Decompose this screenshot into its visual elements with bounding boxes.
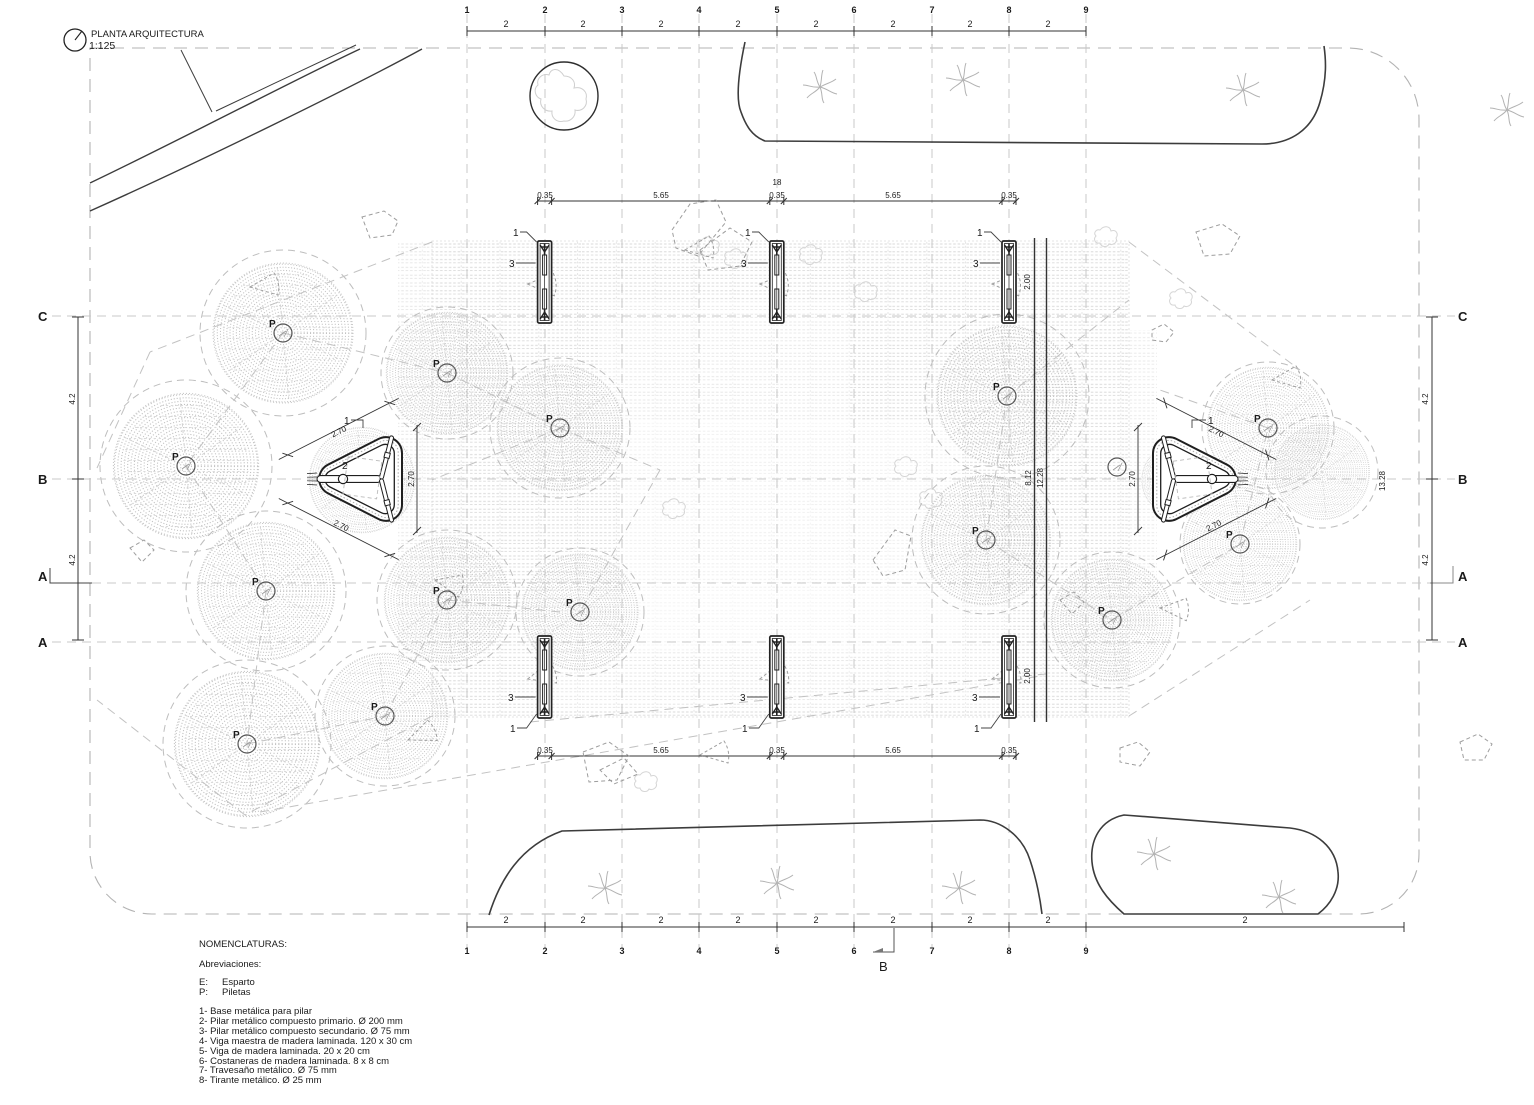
svg-text:2: 2 [813, 19, 818, 29]
svg-text:2.70: 2.70 [407, 471, 416, 487]
svg-text:NOMENCLATURAS:: NOMENCLATURAS: [199, 939, 287, 950]
svg-text:3: 3 [508, 693, 514, 704]
svg-text:8: 8 [1006, 946, 1011, 956]
svg-text:B: B [38, 472, 47, 487]
svg-text:1: 1 [742, 724, 748, 735]
svg-text:4.2: 4.2 [1421, 554, 1430, 566]
svg-text:2: 2 [890, 19, 895, 29]
svg-text:0.35: 0.35 [1001, 191, 1017, 200]
svg-text:3: 3 [741, 259, 747, 270]
svg-text:5.65: 5.65 [885, 191, 901, 200]
svg-text:2: 2 [542, 5, 547, 15]
svg-text:P: P [252, 577, 259, 588]
svg-text:2: 2 [542, 946, 547, 956]
svg-text:6: 6 [851, 946, 856, 956]
svg-text:A: A [38, 569, 48, 584]
svg-text:1:125: 1:125 [89, 40, 115, 52]
svg-text:3: 3 [619, 5, 624, 15]
svg-text:8.12: 8.12 [1024, 470, 1033, 486]
svg-text:3: 3 [972, 693, 978, 704]
svg-text:1: 1 [510, 724, 516, 735]
svg-text:9: 9 [1083, 5, 1088, 15]
svg-text:4: 4 [696, 5, 701, 15]
svg-text:2: 2 [890, 915, 895, 925]
svg-text:5.65: 5.65 [885, 746, 901, 755]
svg-text:P: P [972, 526, 979, 537]
svg-text:2: 2 [580, 915, 585, 925]
svg-text:1: 1 [344, 416, 350, 427]
svg-text:1: 1 [974, 724, 980, 735]
svg-text:0.35: 0.35 [537, 746, 553, 755]
svg-text:1: 1 [977, 228, 983, 239]
svg-text:0.35: 0.35 [769, 746, 785, 755]
svg-text:4: 4 [696, 946, 701, 956]
svg-text:Piletas: Piletas [222, 987, 251, 998]
svg-text:13.28: 13.28 [1378, 470, 1387, 491]
svg-text:3: 3 [509, 259, 515, 270]
svg-text:A: A [1458, 569, 1468, 584]
svg-text:2: 2 [967, 915, 972, 925]
svg-text:8: 8 [1006, 5, 1011, 15]
svg-text:2.00: 2.00 [1023, 274, 1032, 290]
svg-text:P: P [433, 586, 440, 597]
svg-text:C: C [38, 309, 48, 324]
svg-text:2: 2 [813, 915, 818, 925]
svg-text:2: 2 [1206, 461, 1212, 472]
svg-text:3: 3 [973, 259, 979, 270]
svg-text:P: P [433, 359, 440, 370]
svg-text:A: A [1458, 635, 1468, 650]
svg-text:0.35: 0.35 [537, 191, 553, 200]
svg-text:C: C [1458, 309, 1468, 324]
svg-text:7: 7 [929, 5, 934, 15]
svg-text:2: 2 [1045, 19, 1050, 29]
svg-text:5: 5 [774, 5, 779, 15]
svg-text:P: P [269, 319, 276, 330]
svg-text:P: P [1098, 606, 1105, 617]
svg-text:5: 5 [774, 946, 779, 956]
svg-text:9: 9 [1083, 946, 1088, 956]
svg-text:2: 2 [503, 19, 508, 29]
svg-text:2.70: 2.70 [1128, 471, 1137, 487]
svg-text:P: P [1254, 414, 1261, 425]
svg-text:5.65: 5.65 [653, 746, 669, 755]
svg-text:P: P [546, 414, 553, 425]
svg-text:3: 3 [740, 693, 746, 704]
svg-text:P: P [993, 382, 1000, 393]
svg-text:2: 2 [1045, 915, 1050, 925]
svg-text:4.2: 4.2 [68, 554, 77, 566]
svg-text:7: 7 [929, 946, 934, 956]
svg-text:B: B [1458, 472, 1467, 487]
svg-text:P:: P: [199, 987, 208, 998]
svg-text:A: A [38, 635, 48, 650]
svg-text:1: 1 [745, 228, 751, 239]
svg-text:2.00: 2.00 [1023, 668, 1032, 684]
svg-text:Abreviaciones:: Abreviaciones: [199, 959, 261, 970]
svg-text:2: 2 [503, 915, 508, 925]
svg-text:12.28: 12.28 [1036, 467, 1045, 488]
svg-text:2: 2 [735, 19, 740, 29]
svg-text:4.2: 4.2 [68, 393, 77, 405]
svg-text:5.65: 5.65 [653, 191, 669, 200]
svg-text:1: 1 [513, 228, 519, 239]
svg-text:PLANTA ARQUITECTURA: PLANTA ARQUITECTURA [91, 29, 204, 40]
svg-text:P: P [371, 702, 378, 713]
svg-text:1: 1 [464, 946, 469, 956]
svg-text:2: 2 [735, 915, 740, 925]
svg-text:2: 2 [580, 19, 585, 29]
svg-text:P: P [566, 598, 573, 609]
svg-text:1: 1 [1208, 416, 1214, 427]
svg-text:1: 1 [464, 5, 469, 15]
svg-text:2: 2 [1242, 915, 1247, 925]
svg-text:B: B [879, 959, 888, 974]
svg-text:18: 18 [773, 178, 782, 187]
svg-text:P: P [1226, 530, 1233, 541]
svg-text:8- Tirante metálico. Ø 25 mm: 8- Tirante metálico. Ø 25 mm [199, 1075, 322, 1086]
svg-text:2: 2 [658, 19, 663, 29]
svg-text:P: P [172, 452, 179, 463]
svg-text:4.2: 4.2 [1421, 393, 1430, 405]
svg-text:2: 2 [342, 461, 348, 472]
svg-text:P: P [233, 730, 240, 741]
svg-text:0.35: 0.35 [769, 191, 785, 200]
svg-text:2: 2 [658, 915, 663, 925]
svg-text:2: 2 [967, 19, 972, 29]
svg-text:3: 3 [619, 946, 624, 956]
svg-text:0.35: 0.35 [1001, 746, 1017, 755]
svg-text:6: 6 [851, 5, 856, 15]
